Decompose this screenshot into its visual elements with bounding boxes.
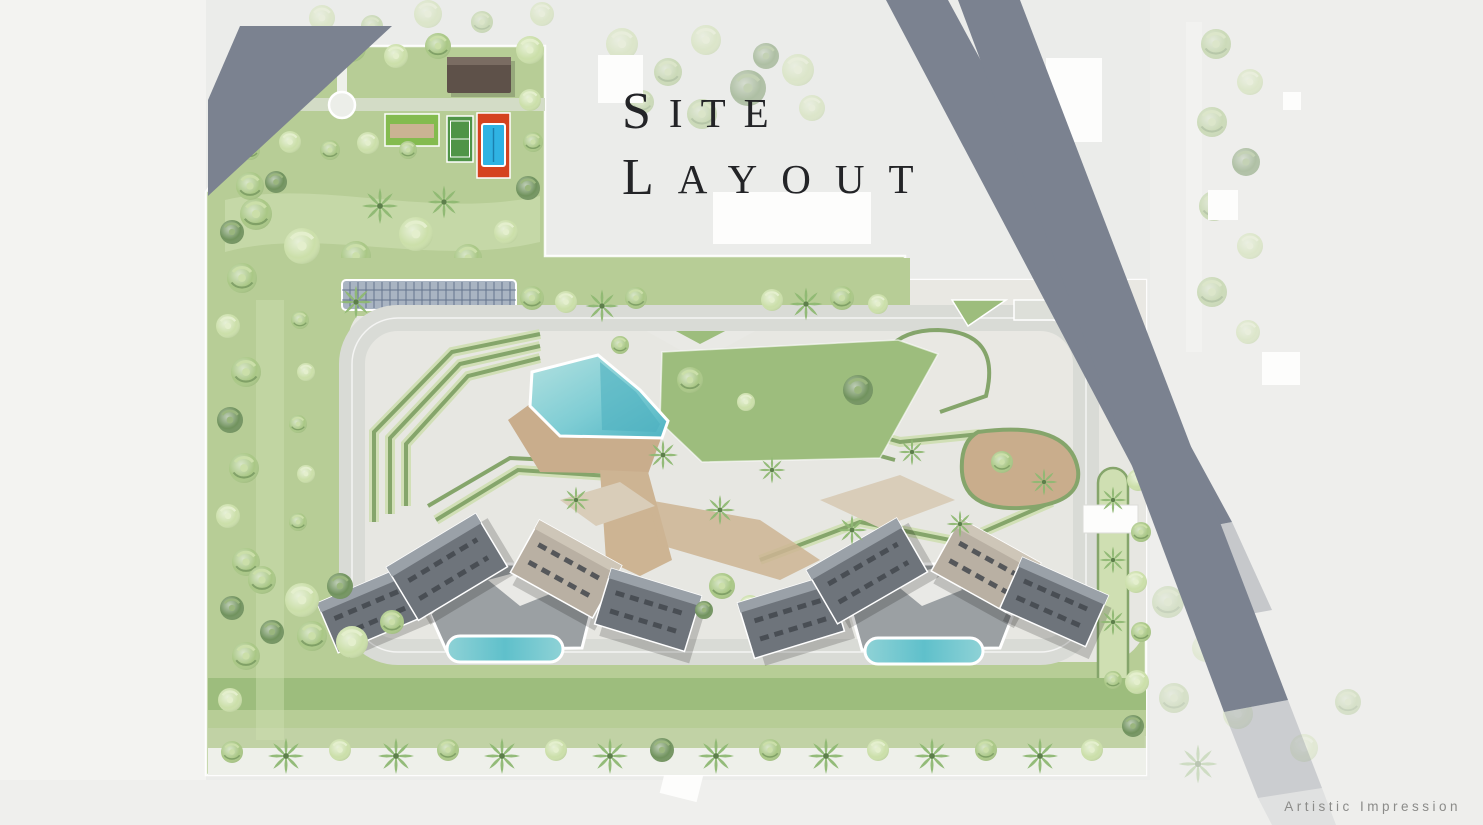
south-green-band xyxy=(208,678,1146,775)
context-building-footprint xyxy=(1262,352,1300,385)
site-layout-page: { "title": { "full": "SITE LAYOUT", "lin… xyxy=(0,0,1483,825)
lap-pool xyxy=(865,638,983,664)
left-margin xyxy=(0,0,206,825)
lap-pool xyxy=(447,636,563,662)
sand-pit xyxy=(390,124,434,138)
artistic-impression-caption: Artistic Impression xyxy=(1284,799,1461,814)
adventure-garden xyxy=(962,430,1078,508)
circular-plaza xyxy=(329,92,355,118)
context-building-footprint xyxy=(1283,92,1301,110)
title-line1-initial: S xyxy=(622,83,669,140)
entrance-canopy xyxy=(1083,505,1138,533)
tennis-court xyxy=(447,116,473,162)
clubhouse-roof-edge xyxy=(447,57,511,65)
title-line2-initial: L xyxy=(622,149,678,206)
title-line2-rest: AYOUT xyxy=(678,156,938,202)
page-title: SITE LAYOUT xyxy=(622,86,1042,204)
context-building-footprint xyxy=(1208,190,1238,220)
pool-court xyxy=(477,113,510,178)
title-line1-rest: ITE xyxy=(669,90,787,136)
context-path xyxy=(1186,22,1202,352)
